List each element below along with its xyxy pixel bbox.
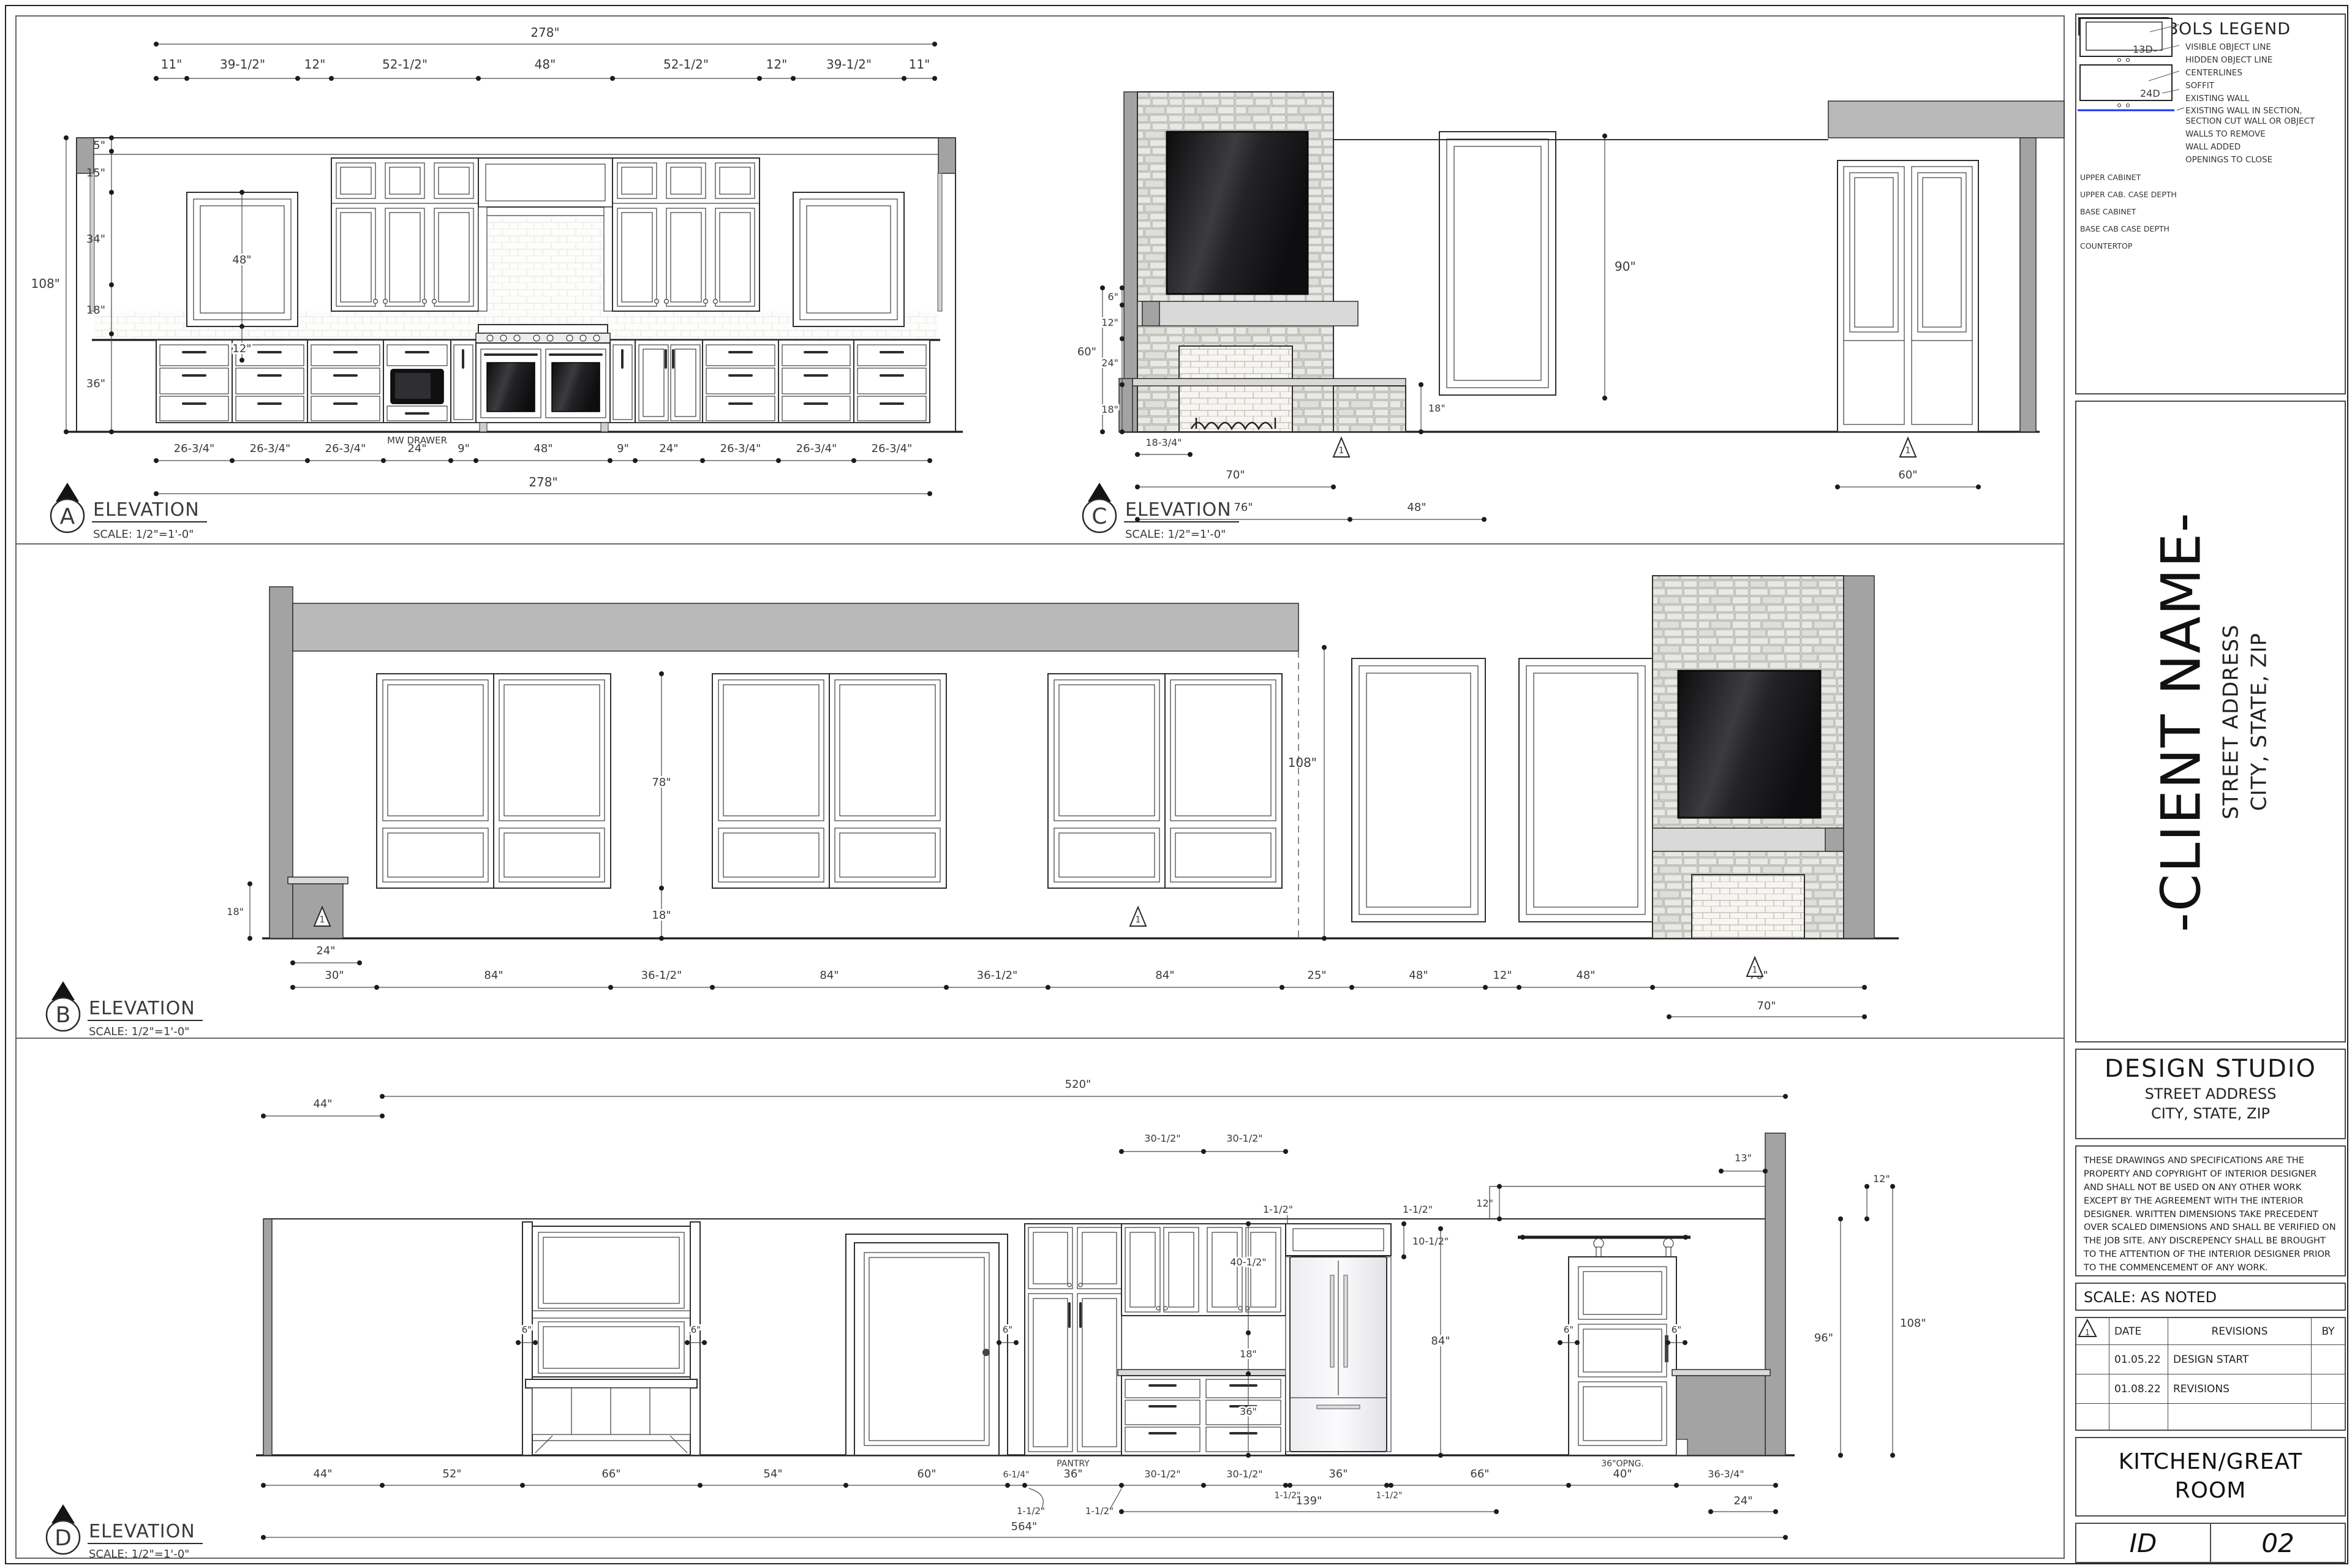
dim-label: 12" — [1873, 1173, 1890, 1185]
dim-label: 96" — [1814, 1332, 1833, 1344]
base-cabinet-section — [1672, 1370, 1770, 1455]
dim-label: 52-1/2" — [382, 57, 428, 72]
studio-address: STREET ADDRESS — [2076, 1085, 2345, 1102]
fireplace-section — [1653, 576, 1874, 938]
dim-label: 48" — [1576, 969, 1595, 982]
double-door — [1838, 160, 1978, 432]
upper-depth-value: 13D — [2133, 43, 2153, 55]
dim-label: 278" — [530, 25, 559, 40]
revision-by — [2312, 1345, 2345, 1374]
dim-label: 48" — [1409, 969, 1428, 982]
soffit-beam — [293, 603, 1298, 651]
dim-label: 6-1/4" — [1003, 1470, 1030, 1480]
elevations-canvas: 278" 11" 39-1/2" 12" 52-1/2" 48" 52-1/2"… — [0, 0, 2352, 1568]
dim-label: 36" — [1329, 1468, 1347, 1480]
dim-label: 18" — [1240, 1348, 1257, 1360]
hearth-cap — [1133, 379, 1406, 386]
dim-label: 52" — [442, 1468, 461, 1480]
legend-label: COUNTERTOP — [2080, 241, 2177, 251]
scale-note: SCALE: AS NOTED — [2084, 1289, 2217, 1306]
dim-label: 6" — [1564, 1324, 1574, 1335]
legend-label: BASE CABINET — [2080, 207, 2177, 216]
dim-label: 520" — [1065, 1078, 1091, 1091]
dim-label: 18" — [1101, 404, 1118, 415]
dim-label: 24" — [1733, 1494, 1752, 1507]
dim-label: 66" — [601, 1468, 620, 1480]
tv-screen — [1167, 132, 1308, 294]
wall-section-post — [263, 1219, 272, 1455]
dim-label: 11" — [909, 57, 930, 72]
wall-section-post — [1844, 576, 1874, 938]
tall-panel-2 — [1519, 658, 1653, 922]
dim-label: 52-1/2" — [663, 57, 709, 72]
dim-label: 30-1/2" — [1144, 1468, 1180, 1480]
legend-cabinet-diagram: 13D 24D UPPER CABINET UPPER CAB. CASE DE… — [2076, 167, 2345, 251]
wall-section-post — [1765, 1133, 1785, 1455]
dim-label: 30-1/2" — [1226, 1468, 1262, 1480]
dim-label: 12" — [1101, 317, 1118, 328]
hinged-door — [846, 1234, 1008, 1455]
elevation-title: ELEVATION — [1125, 499, 1232, 521]
dim-c-left: 60" 6" 12" 24" 18" — [1077, 285, 1125, 434]
dim-a-left: 108" 5" 15" 34" 18" 36" — [31, 135, 114, 434]
project-title-block: KITCHEN/GREAT ROOM — [2075, 1437, 2346, 1517]
elevation-d: 44" 520" 30-1/2" 30-1/2" 13" 12" 1-1/2" … — [47, 1078, 1926, 1561]
studio-city: CITY, STATE, ZIP — [2076, 1105, 2345, 1122]
dim-label: 15" — [86, 167, 105, 179]
dim-label: 18" — [1428, 402, 1445, 414]
dim-label: 108" — [31, 276, 60, 291]
dim-label: 564" — [1011, 1520, 1038, 1533]
mantel — [1653, 828, 1844, 851]
elevation-title: ELEVATION — [93, 499, 200, 521]
cabinet-labels: UPPER CABINET UPPER CAB. CASE DEPTH BASE… — [2080, 169, 2177, 251]
revision-triangle: 1 1 — [1333, 438, 1916, 457]
legend-row: WALLS TO REMOVE — [2076, 128, 2345, 141]
dim-label: 36" — [86, 377, 105, 390]
dim-label: 18-3/4" — [1145, 437, 1182, 448]
legend-label: VISIBLE OBJECT LINE — [2185, 42, 2271, 53]
dim-label: 26-3/4" — [720, 442, 761, 455]
microwave-drawer — [383, 340, 451, 423]
dim-label: 18" — [86, 304, 105, 317]
pantry-cabinet — [1025, 1224, 1121, 1455]
dim-label: 36-3/4" — [1708, 1468, 1744, 1480]
dim-label: 48" — [1407, 501, 1426, 514]
client-block: -CLIENT NAME- STREET ADDRESS CITY, STATE… — [2075, 401, 2346, 1042]
dim-label: 6" — [522, 1324, 532, 1335]
revision-date: 01.05.22 — [2109, 1345, 2168, 1374]
sheet-id-label: ID — [2076, 1524, 2211, 1562]
dim-a-bottom: MW DRAWER 26-3/4" 26-3/4" 26-3/4" 24" 9"… — [154, 435, 932, 496]
sheet-id-block: ID 02 — [2075, 1523, 2346, 1563]
triangle-icon: 1 — [2076, 1318, 2098, 1339]
dim-label: 66" — [1470, 1468, 1489, 1480]
dim-label: 12" — [766, 57, 788, 72]
dim-label: 34" — [86, 233, 105, 246]
client-city: CITY, STATE, ZIP — [2247, 415, 2272, 1028]
legend-label: EXISTING WALL IN SECTION, SECTION CUT WA… — [2185, 106, 2340, 127]
client-rotated-text: -CLIENT NAME- STREET ADDRESS CITY, STATE… — [2150, 415, 2272, 1028]
window-group-3 — [1048, 674, 1282, 888]
dim-label: 6" — [1003, 1324, 1012, 1335]
window-group-1 — [377, 674, 611, 888]
elevation-scale: SCALE: 1/2"=1'-0" — [1125, 528, 1226, 541]
revision-symbol-cell — [2076, 1345, 2109, 1374]
dim-label: 36-1/2" — [641, 969, 682, 982]
revision-by — [2312, 1374, 2345, 1404]
elevation-c-title: C ELEVATION SCALE: 1/2"=1'-0" — [1083, 483, 1239, 541]
legend-label: WALL ADDED — [2185, 142, 2241, 153]
sheet-number: 02 — [2211, 1524, 2345, 1562]
tv-screen — [1678, 671, 1820, 818]
dim-label: 5" — [93, 139, 105, 152]
revision-number: 1 — [2085, 1329, 2090, 1338]
dim-label: 26-3/4" — [796, 442, 837, 455]
elevation-marker: A — [60, 504, 75, 529]
dim-label: 1-1/2" — [1017, 1506, 1045, 1517]
wall-section-strip — [2020, 138, 2036, 432]
bench-seat — [526, 1379, 697, 1388]
elevation-a: 278" 11" 39-1/2" 12" 52-1/2" 48" 52-1/2"… — [31, 25, 963, 541]
revision-symbol-cell — [2076, 1404, 2109, 1431]
dim-c-bottom: 18-3/4" 70" 76" 48" 60" — [1135, 437, 1981, 522]
hearth-base — [1333, 386, 1406, 432]
dim-label: 90" — [1615, 259, 1636, 274]
dim-label: 1-1/2" — [1263, 1204, 1293, 1215]
tall-panel-1 — [1352, 658, 1485, 922]
window-frame — [1439, 132, 1556, 395]
dim-label: 18" — [227, 906, 244, 918]
dim-label: 12" — [232, 342, 251, 355]
base-depth-value: 24D — [2140, 88, 2160, 99]
dim-label: 18" — [652, 909, 671, 922]
upper-cabinets-right — [612, 158, 759, 311]
dim-label: 76" — [1234, 501, 1253, 514]
elevation-marker: C — [1091, 504, 1107, 529]
door-knob — [982, 1349, 990, 1356]
dim-label: 26-3/4" — [325, 442, 366, 455]
elevation-b: 18" 78" 18" 108" 24" 30" 84" 36-1/2" — [47, 576, 1899, 1038]
soffit — [1828, 101, 2064, 138]
dim-label: 30" — [325, 969, 344, 982]
legend-label: BASE CAB CASE DEPTH — [2080, 224, 2177, 233]
legend-label: OPENINGS TO CLOSE — [2185, 155, 2272, 165]
elevation-scale: SCALE: 1/2"=1'-0" — [89, 1025, 189, 1038]
dim-label: 54" — [763, 1468, 782, 1480]
dim-label: 9" — [458, 442, 470, 455]
cabinet-diagram: 13D 24D — [2076, 15, 2192, 118]
dim-a-top: 278" 11" 39-1/2" 12" 52-1/2" 48" 52-1/2"… — [154, 25, 937, 81]
revision-number: 1 — [320, 915, 325, 925]
revision-desc — [2168, 1404, 2312, 1431]
dim-label: 30-1/2" — [1226, 1133, 1262, 1144]
dim-label: 1-1/2" — [1403, 1204, 1433, 1215]
dim-label: 24" — [407, 442, 426, 455]
client-name: -CLIENT NAME- — [2150, 415, 2213, 1028]
dim-label: 26-3/4" — [872, 442, 913, 455]
legend-label: WALLS TO REMOVE — [2185, 129, 2266, 140]
revision-date — [2109, 1404, 2168, 1431]
dim-label: 40" — [1613, 1468, 1632, 1480]
legend-label: EXISTING WALL — [2185, 94, 2249, 104]
barn-door — [1518, 1235, 1691, 1455]
revisions-table: 0 DATE REVISIONS BY 01.05.22 DESIGN STAR… — [2075, 1317, 2346, 1431]
bench-nook — [522, 1222, 700, 1455]
dim-label: 78" — [652, 776, 671, 789]
elevation-scale: SCALE: 1/2"=1'-0" — [89, 1548, 189, 1561]
base-cabinet-section — [288, 877, 348, 938]
dim-label: 278" — [529, 475, 557, 489]
revision-date: 01.08.22 — [2109, 1374, 2168, 1404]
dim-c-90: 90" — [1602, 134, 1636, 401]
legend-label: CENTERLINES — [2185, 68, 2242, 78]
revision-number: 1 — [1752, 965, 1758, 975]
refrigerator — [1286, 1224, 1391, 1452]
dim-label: 48" — [533, 442, 552, 455]
dim-label: 84" — [820, 969, 839, 982]
dim-label: 9" — [617, 442, 629, 455]
revision-symbol-cell: 1 — [2076, 1374, 2109, 1404]
barn-door-handle — [1665, 1335, 1668, 1362]
legend-label: UPPER CAB. CASE DEPTH — [2080, 190, 2177, 199]
dim-label: 12" — [1493, 969, 1512, 982]
elevation-scale: SCALE: 1/2"=1'-0" — [93, 528, 194, 541]
dim-label: 6" — [1672, 1324, 1681, 1335]
revision-number: 1 — [1339, 446, 1344, 456]
dim-label: 139" — [1296, 1494, 1322, 1507]
dim-label: 44" — [313, 1098, 332, 1110]
elevation-d-title: D ELEVATION SCALE: 1/2"=1'-0" — [47, 1504, 203, 1561]
revision-number: 1 — [1136, 915, 1141, 925]
dim-label: 60" — [1898, 469, 1917, 481]
revisions-desc-header: REVISIONS — [2168, 1318, 2312, 1345]
revision-desc: DESIGN START — [2168, 1345, 2312, 1374]
dim-label: 30-1/2" — [1144, 1133, 1180, 1144]
client-address: STREET ADDRESS — [2219, 415, 2244, 1028]
dim-label: 1-1/2" — [1376, 1491, 1403, 1501]
revision-desc: REVISIONS — [2168, 1374, 2312, 1404]
upper-cabinets-left — [331, 158, 478, 311]
legend-label: HIDDEN OBJECT LINE — [2185, 55, 2272, 66]
scale-block: SCALE: AS NOTED — [2075, 1283, 2346, 1311]
elevation-c: 60" 6" 12" 24" 18" 18" — [1077, 92, 2064, 541]
elevation-b-title: B ELEVATION SCALE: 1/2"=1'-0" — [47, 981, 203, 1038]
hutch-counter — [1118, 1370, 1289, 1376]
dim-label: 1-1/2" — [1085, 1506, 1114, 1517]
drawing-sheet: 278" 11" 39-1/2" 12" 52-1/2" 48" 52-1/2"… — [0, 0, 2352, 1568]
revisions-by-header: BY — [2312, 1318, 2345, 1345]
revisions-date-header: DATE — [2109, 1318, 2168, 1345]
dim-label: 36" — [1240, 1406, 1257, 1417]
elevation-marker: D — [55, 1526, 72, 1551]
dim-label: 11" — [161, 57, 183, 72]
dim-d-bottom: PANTRY 36"OPNG. 44" 52" 66" 54" 60" 6-1/… — [261, 1459, 1788, 1540]
dim-label: 84" — [1155, 969, 1174, 982]
dim-label: 12" — [1476, 1197, 1493, 1209]
dim-label: 70" — [1757, 1000, 1776, 1012]
dim-label: 60" — [1077, 345, 1096, 358]
dim-label: 26-3/4" — [250, 442, 291, 455]
dim-label: 12" — [304, 57, 326, 72]
dim-label: 40-1/2" — [1230, 1256, 1266, 1268]
wall-section-post — [269, 587, 293, 938]
dim-label: 24" — [316, 944, 335, 957]
dim-label: 39-1/2" — [220, 57, 265, 72]
dim-label: 24" — [1101, 357, 1118, 369]
revision-number: 1 — [1905, 446, 1911, 456]
legend-row: WALL ADDED — [2076, 141, 2345, 154]
studio-name: DESIGN STUDIO — [2076, 1055, 2345, 1083]
studio-block: DESIGN STUDIO STREET ADDRESS CITY, STATE… — [2075, 1049, 2346, 1139]
window-group-2 — [712, 674, 946, 888]
symbols-legend: SYMBOLS LEGEND VISIBLE OBJECT LINE HIDDE… — [2075, 13, 2346, 394]
dim-label: 25" — [1307, 969, 1326, 982]
dim-label: 108" — [1288, 755, 1317, 770]
dim-label: 70" — [1226, 469, 1245, 481]
project-name: KITCHEN/GREAT ROOM — [2094, 1448, 2327, 1506]
dim-label: 13" — [1735, 1152, 1752, 1164]
disclaimer-text: THESE DRAWINGS AND SPECIFICATIONS ARE TH… — [2076, 1147, 2345, 1282]
legend-row: OPENINGS TO CLOSE — [2076, 154, 2345, 167]
dim-label: 39-1/2" — [826, 57, 872, 72]
dim-label: 60" — [917, 1468, 936, 1480]
elevation-a-title: A ELEVATION SCALE: 1/2"=1'-0" — [51, 483, 207, 541]
firebox — [1692, 875, 1804, 938]
dim-label: 48" — [232, 254, 251, 266]
dim-label: 26-3/4" — [174, 442, 215, 455]
dim-label: 36" — [1063, 1468, 1082, 1480]
dim-label: 10-1/2" — [1412, 1235, 1449, 1247]
window-right — [793, 192, 904, 326]
dim-label: 108" — [1900, 1317, 1926, 1330]
disclaimer-block: THESE DRAWINGS AND SPECIFICATIONS ARE TH… — [2075, 1145, 2346, 1276]
dim-label: 44" — [313, 1468, 332, 1480]
dim-label: 24" — [659, 442, 678, 455]
dim-label: 84" — [1431, 1335, 1450, 1347]
firebox — [1179, 346, 1292, 432]
dim-label: 48" — [535, 57, 556, 72]
elevation-marker: B — [56, 1003, 71, 1028]
dim-label: 36-1/2" — [977, 969, 1018, 982]
dim-label: 6" — [1107, 291, 1118, 303]
dim-label: 6" — [691, 1324, 701, 1335]
elevation-title: ELEVATION — [89, 998, 195, 1019]
elevation-title: ELEVATION — [89, 1521, 195, 1542]
dim-label: 84" — [484, 969, 503, 982]
mantel — [1137, 301, 1358, 326]
legend-label: UPPER CABINET — [2080, 173, 2177, 182]
range — [476, 325, 610, 432]
revision-by — [2312, 1404, 2345, 1431]
